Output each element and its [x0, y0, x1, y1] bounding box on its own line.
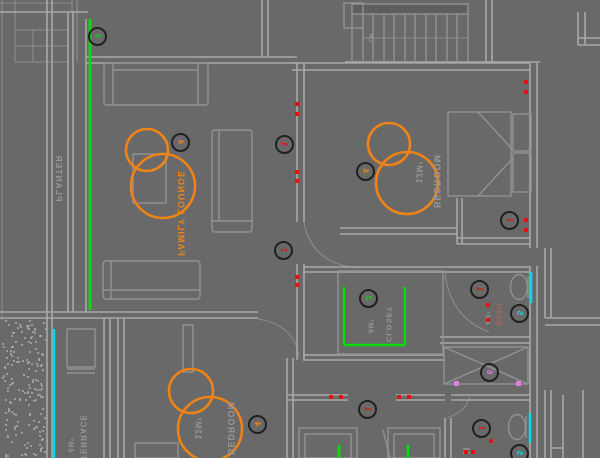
keynote-symbol-6[interactable]: 6	[480, 363, 499, 382]
stipple-dot	[43, 426, 45, 428]
stipple-dot	[40, 365, 42, 367]
stipple-dot	[27, 392, 29, 394]
keynote-number: 1	[279, 248, 287, 252]
stipple-dot	[8, 410, 10, 412]
stipple-dot	[13, 413, 15, 415]
stipple-dot	[29, 320, 31, 322]
stipple-dot	[38, 421, 40, 423]
stipple-dot	[28, 404, 30, 406]
keynote-symbol-4[interactable]: 4	[356, 162, 375, 181]
stipple-dot	[43, 322, 45, 324]
outlet-dot	[295, 170, 299, 174]
outlet-dot	[524, 218, 528, 222]
stipple-dot	[17, 421, 19, 423]
outlet-dot	[295, 179, 299, 183]
stipple-dot	[30, 445, 32, 447]
outlet-dot	[489, 439, 493, 443]
stipple-dot	[5, 412, 7, 414]
stipple-dot	[25, 399, 27, 401]
bedroom-top-area-label: 12M²	[415, 161, 424, 183]
stipple-dot	[4, 367, 6, 369]
keynote-symbol-4[interactable]: 4	[171, 133, 190, 152]
stipple-dot	[11, 335, 13, 337]
keynote-symbol-3[interactable]: 3	[359, 289, 378, 308]
stipple-dot	[34, 328, 36, 330]
keynote-number: 5	[515, 451, 523, 455]
keynote-number: 1	[363, 407, 371, 411]
stipple-dot	[26, 447, 28, 449]
terrace-area-label: 4M²	[67, 437, 74, 452]
stipple-dot	[6, 357, 8, 359]
outlet-dot	[407, 395, 411, 399]
stipple-dot	[22, 360, 24, 362]
bath-room-label: BATH	[495, 303, 502, 326]
keynote-symbol-5[interactable]: 5	[510, 304, 529, 323]
keynote-symbol-5[interactable]: 5	[510, 444, 529, 458]
outlet-dot	[524, 80, 528, 84]
outlet-dot	[329, 395, 333, 399]
stipple-dot	[5, 320, 7, 322]
stipple-dot	[35, 399, 37, 401]
outlet-dot	[486, 318, 490, 322]
stipple-dot	[24, 392, 26, 394]
keynote-symbol-1[interactable]: 1	[472, 419, 491, 438]
magenta-marker	[454, 381, 459, 386]
stipple-dot	[15, 322, 17, 324]
outlet-dot	[295, 275, 299, 279]
stipple-dot	[7, 390, 9, 392]
stipple-dot	[6, 419, 8, 421]
keynote-number: 4	[253, 422, 261, 426]
bedroom-bottom-room-label: BEDROOM	[226, 401, 236, 455]
keynote-number: 4	[176, 140, 184, 144]
bedroom-top-room-label: BEDROOM	[432, 154, 442, 208]
stipple-dot	[42, 430, 44, 432]
outlet-dot	[295, 112, 299, 116]
magenta-marker	[516, 381, 521, 386]
stipple-dot	[4, 380, 6, 382]
stipple-dot	[39, 435, 41, 437]
outlet-dot	[464, 450, 468, 454]
stipple-dot	[7, 435, 9, 437]
stipple-dot	[29, 414, 31, 416]
closet-room-label: CLOSET	[385, 306, 394, 342]
stipple-dot	[28, 368, 30, 370]
stipple-dot	[45, 328, 47, 330]
stipple-dot	[45, 339, 47, 341]
stipple-dot	[6, 350, 8, 352]
stipple-dot	[41, 385, 43, 387]
stipple-dot	[44, 417, 46, 419]
outlet-dot	[397, 395, 401, 399]
keynote-symbol-4[interactable]: 4	[248, 415, 267, 434]
terrace-room-label: TERRACE	[79, 414, 88, 458]
stipple-dot	[33, 428, 35, 430]
deck-tag-label: CH	[367, 34, 373, 43]
keynote-number: 1	[505, 218, 513, 222]
stipple-dot	[10, 350, 12, 352]
keynote-number: 5	[515, 311, 523, 315]
stipple-dot	[3, 346, 5, 348]
stipple-dot	[28, 325, 30, 327]
stipple-dot	[35, 348, 37, 350]
keynote-symbol-1[interactable]: 1	[274, 241, 293, 260]
outlet-dot	[471, 450, 475, 454]
keynote-number: 1	[475, 287, 483, 291]
stipple-dot	[34, 332, 36, 334]
planter-room-label: PLANTER	[54, 154, 64, 201]
keynote-number: 4	[361, 169, 369, 173]
stipple-dot	[12, 382, 14, 384]
stipple-dot	[39, 394, 41, 396]
stipple-dot	[36, 363, 38, 365]
stipple-dot	[17, 327, 19, 329]
keynote-symbol-1[interactable]: 1	[500, 211, 519, 230]
closet-area-label: 4M²	[367, 318, 374, 333]
stipple-dot	[20, 326, 22, 328]
keynote-number: 1	[477, 426, 485, 430]
keynote-number: 1	[280, 142, 288, 146]
bedroom-bottom-area-label: 12M²	[194, 417, 203, 439]
stipple-dot	[26, 359, 28, 361]
stipple-dot	[42, 438, 44, 440]
keynote-symbol-1[interactable]: 1	[470, 280, 489, 299]
stipple-dot	[38, 359, 40, 361]
stipple-dot	[8, 408, 10, 410]
stipple-dot	[32, 381, 34, 383]
stipple-dot	[31, 392, 33, 394]
keynote-symbol-3[interactable]: 3	[88, 27, 107, 46]
keynote-number: 6	[485, 370, 493, 374]
cad-floorplan-viewport[interactable]: PLANTER FAMILY LOUNGE BEDROOM 12M² CLOSE…	[0, 0, 600, 458]
stipple-dot	[5, 424, 7, 426]
keynote-symbol-1[interactable]: 1	[275, 135, 294, 154]
family-lounge-room-label: FAMILY LOUNGE	[176, 170, 186, 256]
outlet-dot	[295, 102, 299, 106]
stipple-dot	[5, 454, 7, 456]
outlet-dot	[486, 303, 490, 307]
outlet-dot	[524, 228, 528, 232]
stipple-dot	[13, 360, 15, 362]
stipple-dot	[40, 448, 42, 450]
stipple-dot	[7, 455, 9, 457]
outlet-dot	[339, 395, 343, 399]
stipple-dot	[36, 389, 38, 391]
keynote-number: 3	[93, 34, 101, 38]
green-highlight-lines	[90, 19, 408, 458]
stipple-dot	[11, 378, 13, 380]
outlet-dot	[524, 90, 528, 94]
keynote-symbol-1[interactable]: 1	[358, 400, 377, 419]
outlet-dot	[295, 283, 299, 287]
keynote-number: 3	[364, 296, 372, 300]
stipple-dot	[13, 351, 15, 353]
